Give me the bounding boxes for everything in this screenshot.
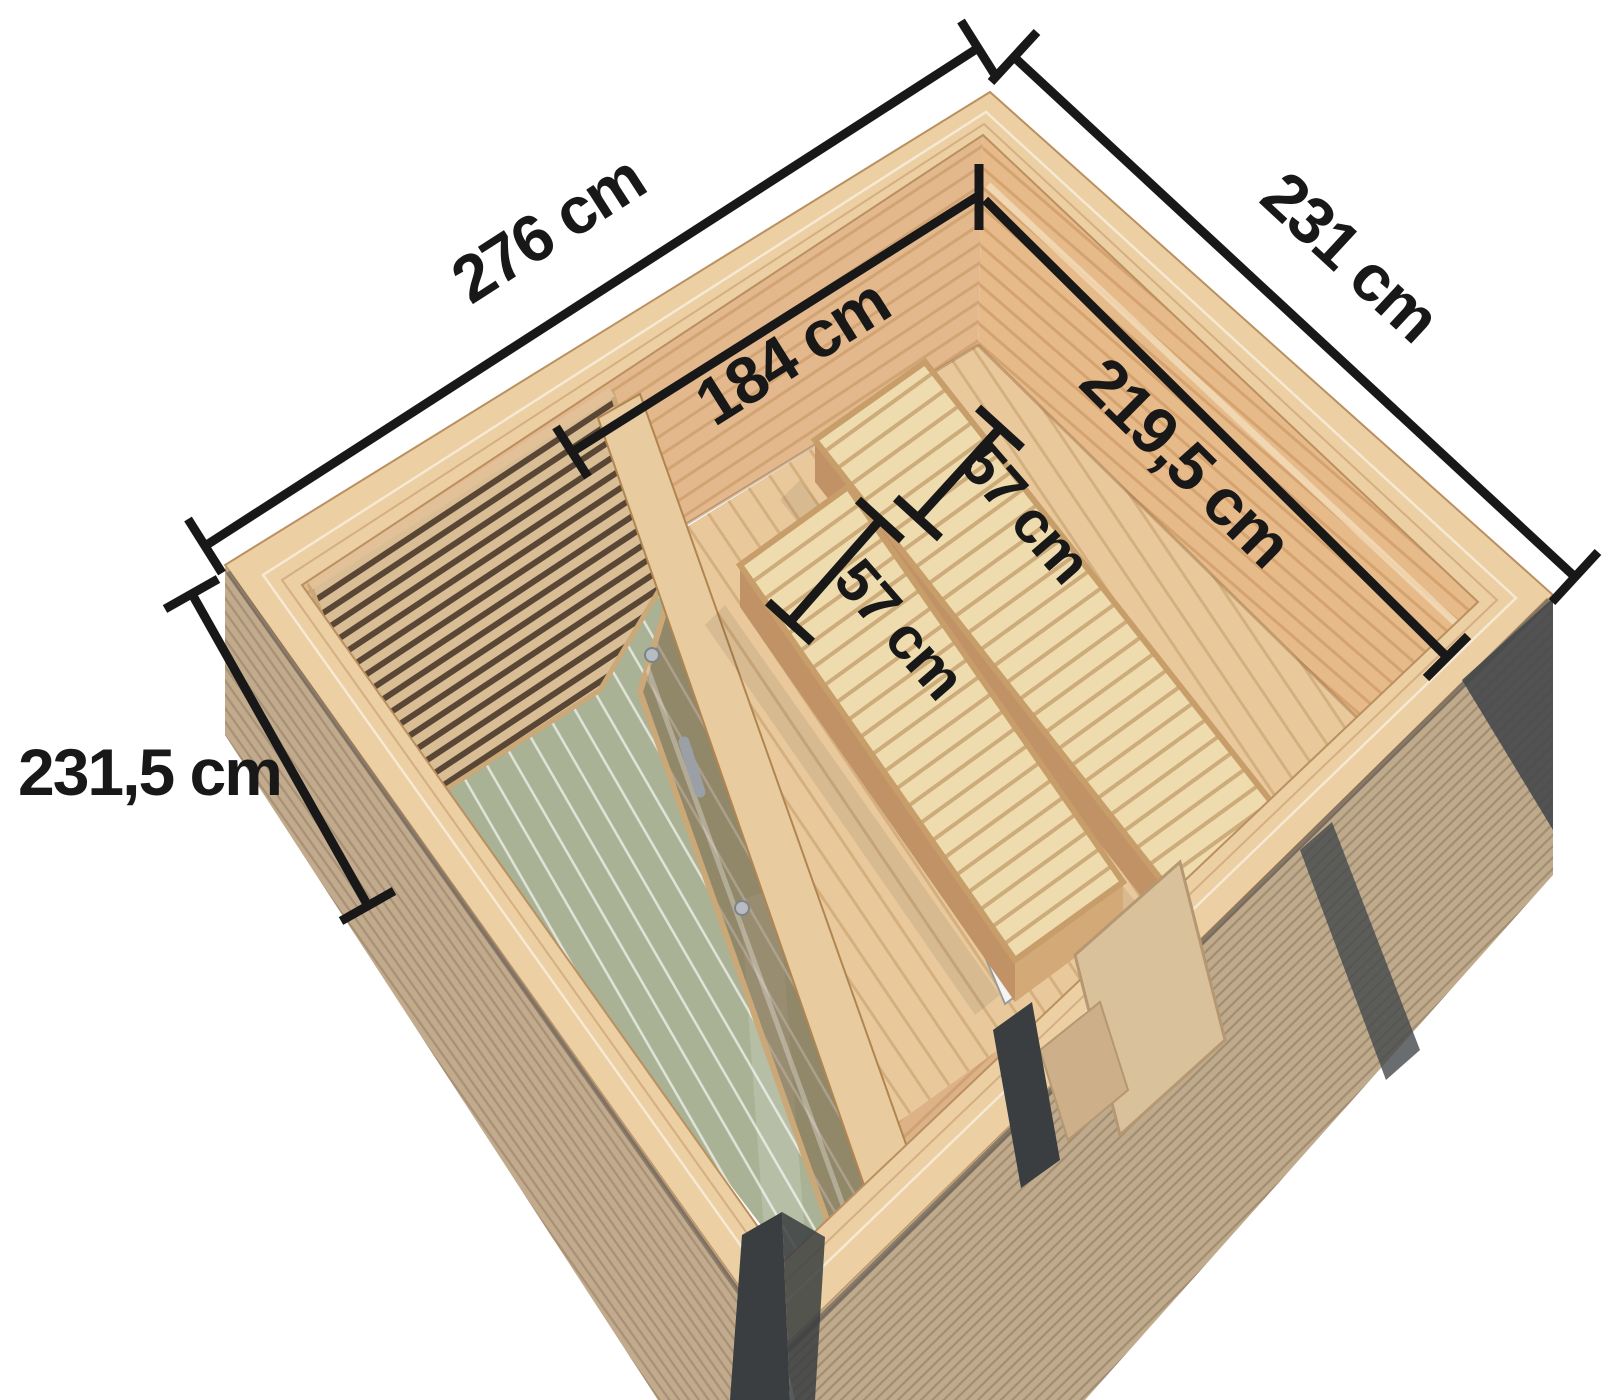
dim-label-2315: 231,5 cm [18, 735, 281, 809]
door-hinge-upper [645, 648, 659, 662]
diagram-canvas: 276 cm 231 cm 231,5 cm 184 cm 219,5 cm 5… [0, 0, 1602, 1400]
door-hinge-lower [735, 901, 749, 915]
sauna-dimension-diagram: 276 cm 231 cm 231,5 cm 184 cm 219,5 cm 5… [0, 0, 1602, 1400]
